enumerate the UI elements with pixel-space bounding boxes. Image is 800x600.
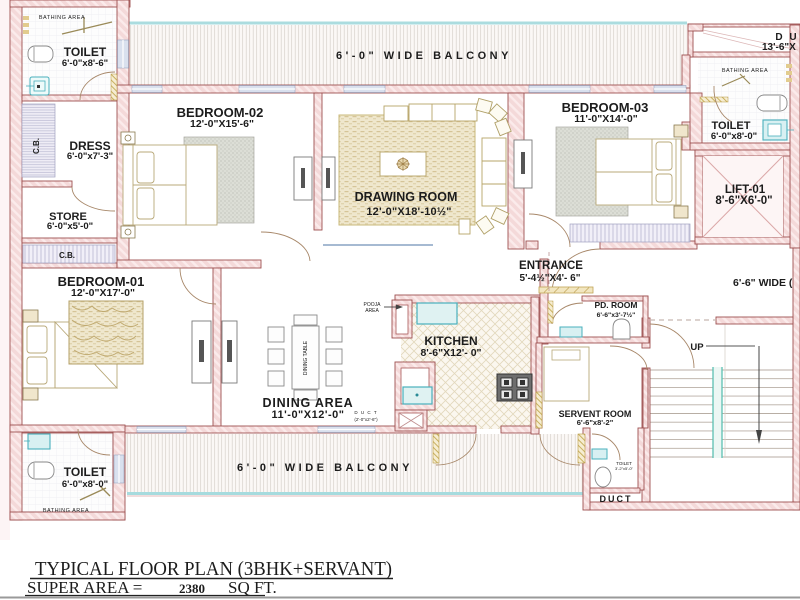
svg-text:(2'-0"x2'-6"): (2'-0"x2'-6") xyxy=(354,417,378,422)
svg-text:3'-2"x5'-0": 3'-2"x5'-0" xyxy=(615,466,634,471)
svg-text:13'-6"X: 13'-6"X xyxy=(762,42,796,53)
svg-text:UP: UP xyxy=(690,342,704,353)
svg-text:6'-0" WIDE BALCONY: 6'-0" WIDE BALCONY xyxy=(336,50,512,62)
svg-text:6'-0"x7'-3": 6'-0"x7'-3" xyxy=(67,151,113,162)
svg-text:ENTRANCE: ENTRANCE xyxy=(519,260,583,272)
svg-text:D U C T: D U C T xyxy=(354,410,377,415)
svg-text:12'-0"X15'-6": 12'-0"X15'-6" xyxy=(190,118,254,130)
svg-text:6'-0"x8'-0": 6'-0"x8'-0" xyxy=(711,131,757,142)
svg-text:BATHING AREA: BATHING AREA xyxy=(39,15,85,21)
svg-text:6'-0"x5'-0": 6'-0"x5'-0" xyxy=(47,221,93,232)
svg-text:KITCHEN: KITCHEN xyxy=(424,334,477,348)
svg-text:TYPICAL FLOOR PLAN (3BHK+SERVA: TYPICAL FLOOR PLAN (3BHK+SERVANT) xyxy=(35,558,392,580)
svg-text:6'-0"x8'-0": 6'-0"x8'-0" xyxy=(62,479,108,490)
svg-text:DINING AREA: DINING AREA xyxy=(263,396,354,410)
svg-text:BATHING AREA: BATHING AREA xyxy=(722,68,768,74)
svg-text:6'-6"x3'-7½": 6'-6"x3'-7½" xyxy=(597,311,636,319)
svg-text:AREA: AREA xyxy=(365,308,379,314)
svg-text:12'-0"X17'-0": 12'-0"X17'-0" xyxy=(71,287,135,299)
svg-text:DRAWING ROOM: DRAWING ROOM xyxy=(355,190,458,204)
svg-text:PD. ROOM: PD. ROOM xyxy=(595,300,638,310)
svg-text:6'-0"x8'-6": 6'-0"x8'-6" xyxy=(62,58,108,69)
svg-text:8'-6"X12'- 0": 8'-6"X12'- 0" xyxy=(420,347,481,359)
svg-text:C.B.: C.B. xyxy=(59,251,75,260)
svg-text:12'-0"X18'-10½": 12'-0"X18'-10½" xyxy=(366,206,451,218)
svg-text:6'-6" WIDE (: 6'-6" WIDE ( xyxy=(733,277,793,289)
svg-text:TOILET: TOILET xyxy=(64,465,107,479)
svg-text:11'-0"X14'-0": 11'-0"X14'-0" xyxy=(574,113,637,125)
svg-text:DINING TABLE: DINING TABLE xyxy=(303,340,309,375)
svg-text:11'-0"X12'-0": 11'-0"X12'-0" xyxy=(272,409,345,421)
svg-text:BATHING AREA: BATHING AREA xyxy=(43,508,89,514)
svg-text:C.B.: C.B. xyxy=(32,138,41,154)
svg-text:DUCT: DUCT xyxy=(600,494,633,504)
svg-text:6'-6"x8'-2": 6'-6"x8'-2" xyxy=(577,418,614,427)
svg-text:TOILET: TOILET xyxy=(64,45,107,59)
svg-text:8'-6"X6'-0": 8'-6"X6'-0" xyxy=(715,195,772,207)
svg-text:6'-0" WIDE BALCONY: 6'-0" WIDE BALCONY xyxy=(237,462,413,474)
svg-text:5'-4½"X4'- 6": 5'-4½"X4'- 6" xyxy=(520,273,581,284)
